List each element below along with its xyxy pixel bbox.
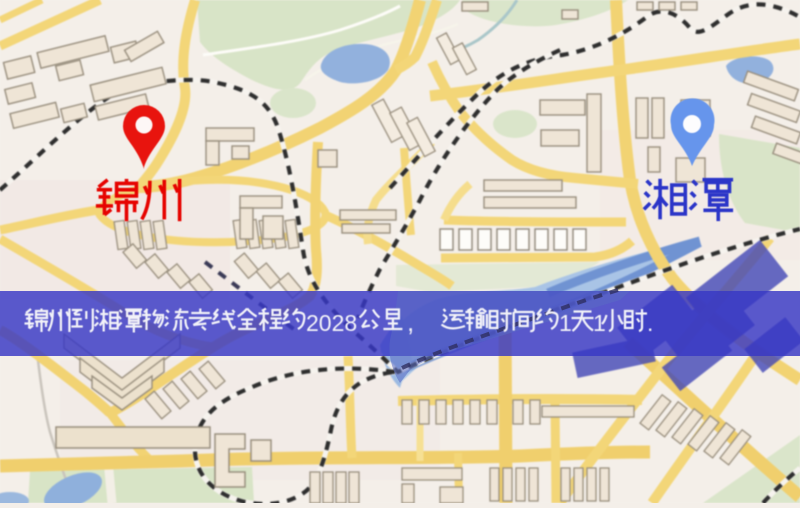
svg-text:.: .	[647, 310, 653, 336]
svg-text:1: 1	[559, 310, 572, 336]
svg-text:2028: 2028	[306, 310, 357, 336]
svg-text:,: ,	[407, 307, 414, 337]
svg-text:1: 1	[593, 310, 606, 336]
